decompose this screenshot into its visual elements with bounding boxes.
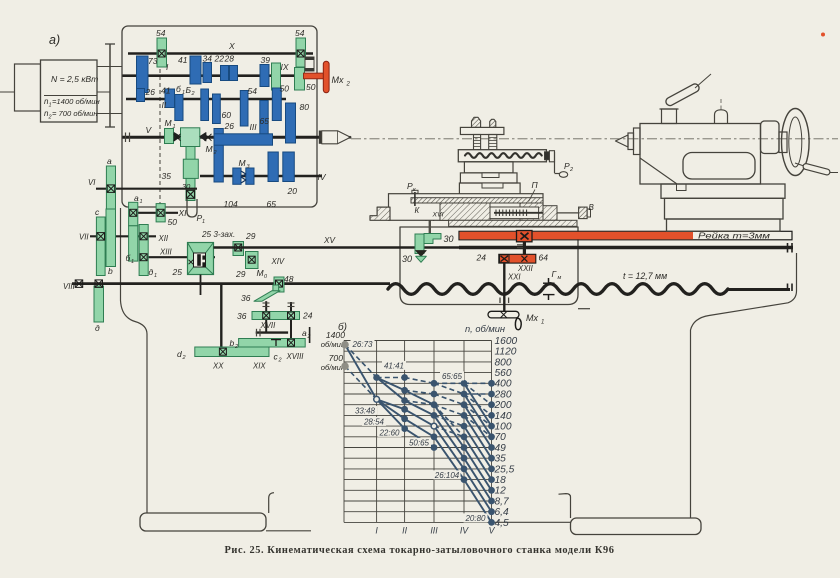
svg-text:XIII: XIII [159, 248, 173, 257]
svg-text:2: 2 [182, 355, 186, 361]
svg-text:12: 12 [495, 486, 507, 497]
svg-text:54: 54 [295, 28, 305, 38]
svg-text:29: 29 [245, 231, 256, 241]
svg-text:560: 560 [495, 368, 512, 379]
svg-text:д: д [95, 323, 100, 333]
svg-text:П: П [532, 180, 539, 190]
svg-text:IV: IV [318, 172, 327, 182]
svg-text:к: к [413, 187, 416, 193]
svg-text:25 3-зах.: 25 3-зах. [201, 230, 235, 239]
svg-text:49: 49 [495, 443, 507, 454]
svg-text:XI: XI [178, 208, 188, 218]
svg-text:4,5: 4,5 [495, 518, 509, 529]
svg-text:30: 30 [444, 234, 454, 244]
svg-text:М: М [206, 144, 214, 154]
svg-text:100: 100 [495, 422, 512, 433]
svg-text:70: 70 [495, 432, 507, 443]
svg-text:200: 200 [494, 400, 512, 411]
svg-text:III: III [250, 122, 258, 132]
svg-text:18: 18 [495, 475, 507, 486]
svg-text:1120: 1120 [495, 347, 517, 358]
svg-text:2: 2 [569, 167, 573, 173]
svg-text:III: III [430, 526, 438, 536]
svg-text:25,5: 25,5 [494, 464, 515, 475]
svg-text:n, об/мин: n, об/мин [465, 324, 505, 334]
svg-text:41:41: 41:41 [384, 362, 404, 371]
svg-text:35: 35 [495, 454, 507, 465]
svg-text:2: 2 [307, 334, 311, 340]
svg-text:26:73: 26:73 [351, 340, 373, 349]
svg-text:XVI: XVI [432, 212, 444, 219]
svg-text:XV: XV [323, 236, 336, 245]
svg-text:XIV: XIV [271, 257, 285, 266]
svg-text:39: 39 [261, 55, 271, 65]
svg-text:36: 36 [237, 311, 247, 321]
svg-text:М: М [239, 158, 247, 168]
svg-text:1: 1 [202, 219, 205, 225]
svg-text:XVIII: XVIII [286, 352, 305, 361]
svg-text:25: 25 [172, 267, 183, 277]
svg-text:В: В [589, 203, 595, 212]
svg-text:28: 28 [224, 54, 235, 64]
svg-text:М: М [165, 118, 173, 128]
svg-text:400: 400 [495, 379, 512, 390]
svg-text:м: м [558, 275, 562, 281]
svg-text:20: 20 [287, 186, 298, 196]
svg-text:b: b [230, 338, 235, 348]
svg-text:104: 104 [224, 199, 238, 209]
svg-text:50: 50 [306, 82, 316, 92]
svg-text:65: 65 [260, 116, 270, 126]
svg-text:30: 30 [402, 254, 412, 264]
svg-text:48: 48 [284, 274, 294, 284]
svg-text:41: 41 [161, 86, 171, 96]
svg-text:50: 50 [280, 84, 290, 94]
svg-text:50:65: 50:65 [409, 439, 430, 448]
svg-text:65:65: 65:65 [442, 372, 463, 381]
svg-text:1: 1 [541, 320, 544, 326]
svg-text:700: 700 [329, 353, 344, 363]
svg-text:29: 29 [235, 269, 246, 279]
svg-text:= 700 об/мин: = 700 об/мин [52, 109, 98, 118]
svg-text:d: d [177, 349, 182, 359]
svg-text:800: 800 [495, 357, 512, 368]
svg-text:VI: VI [88, 178, 96, 187]
svg-text:Мх: Мх [526, 313, 538, 323]
svg-text:35: 35 [162, 171, 172, 181]
svg-text:VIII: VIII [63, 282, 76, 291]
svg-text:II: II [162, 100, 167, 110]
svg-text:65: 65 [267, 199, 277, 209]
svg-text:1: 1 [154, 273, 157, 279]
svg-text:b: b [108, 266, 113, 276]
svg-text:Рейка m=3мм: Рейка m=3мм [698, 232, 771, 241]
svg-text:54: 54 [156, 28, 166, 38]
svg-text:1400: 1400 [326, 330, 345, 340]
svg-text:1: 1 [173, 124, 176, 130]
svg-text:Мх: Мх [332, 75, 344, 85]
svg-text:XXI: XXI [507, 273, 521, 282]
svg-text:24: 24 [476, 253, 487, 263]
svg-text:1: 1 [131, 259, 134, 265]
svg-text:6,4: 6,4 [495, 507, 509, 518]
svg-text:2: 2 [48, 115, 52, 121]
svg-text:26:104: 26:104 [434, 471, 460, 480]
svg-text:a: a [134, 193, 139, 203]
svg-text:II: II [402, 526, 407, 536]
svg-text:XII: XII [158, 234, 169, 243]
svg-text:XX: XX [212, 362, 224, 371]
svg-text:2: 2 [234, 344, 238, 350]
svg-text:54: 54 [248, 86, 258, 96]
svg-text:а): а) [49, 33, 60, 47]
svg-text:t = 12,7 мм: t = 12,7 мм [623, 271, 667, 281]
svg-text:26: 26 [145, 87, 156, 97]
svg-text:24: 24 [302, 311, 313, 321]
svg-text:N = 2,5 кВт: N = 2,5 кВт [51, 74, 98, 84]
svg-text:д: д [149, 267, 154, 277]
svg-text:26: 26 [224, 121, 235, 131]
svg-text:33:48: 33:48 [355, 407, 376, 416]
svg-text:280: 280 [494, 389, 512, 400]
svg-text:VII: VII [79, 233, 89, 242]
svg-text:X: X [228, 41, 235, 51]
svg-text:20:80: 20:80 [464, 514, 486, 523]
svg-text:2: 2 [346, 82, 351, 88]
svg-text:2: 2 [278, 358, 282, 364]
svg-text:=1400 об/мин: =1400 об/мин [52, 97, 100, 106]
svg-text:8,7: 8,7 [495, 496, 509, 507]
svg-text:IV: IV [460, 526, 469, 536]
svg-text:22:60: 22:60 [378, 429, 400, 438]
svg-text:80: 80 [300, 102, 310, 112]
svg-text:36: 36 [241, 293, 251, 303]
svg-text:IX: IX [281, 62, 289, 72]
svg-text:140: 140 [495, 411, 512, 422]
svg-text:60: 60 [222, 110, 232, 120]
svg-text:XVII: XVII [260, 321, 277, 330]
svg-text:64: 64 [539, 253, 549, 263]
svg-text:1600: 1600 [495, 336, 518, 347]
svg-text:2: 2 [213, 150, 217, 156]
svg-text:22: 22 [214, 54, 225, 64]
svg-text:XIX: XIX [252, 362, 266, 371]
svg-text:2: 2 [191, 91, 195, 97]
svg-text:50: 50 [168, 217, 178, 227]
svg-text:73: 73 [148, 56, 158, 66]
svg-text:a: a [302, 328, 307, 338]
svg-text:41: 41 [178, 55, 188, 65]
svg-text:Рис. 25. Кинематическая схема: Рис. 25. Кинематическая схема токарно-за… [225, 544, 615, 556]
svg-text:34: 34 [203, 54, 213, 64]
svg-text:1: 1 [140, 199, 143, 205]
svg-text:a: a [107, 156, 112, 166]
svg-text:28:54: 28:54 [363, 418, 385, 427]
